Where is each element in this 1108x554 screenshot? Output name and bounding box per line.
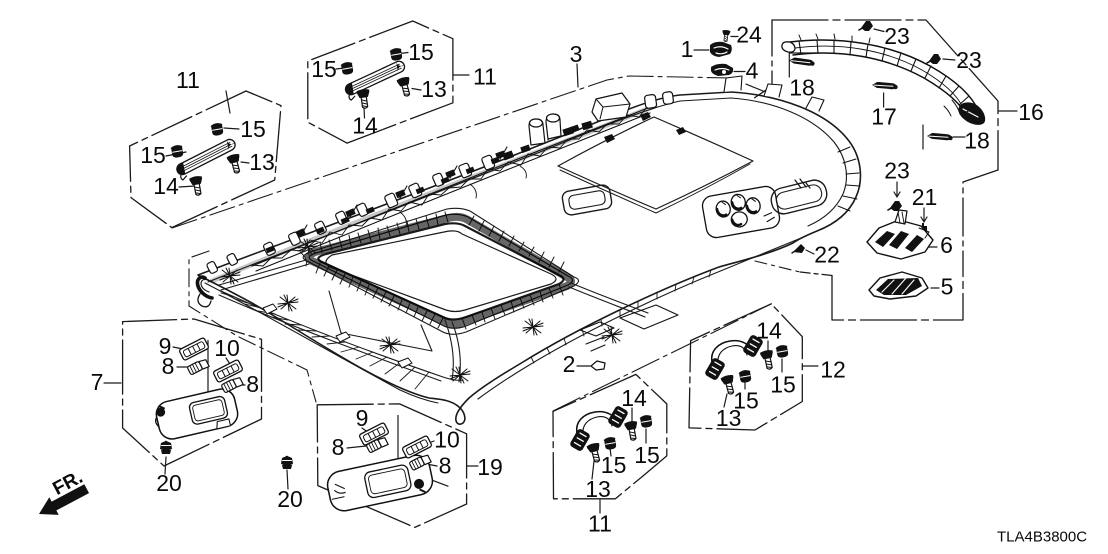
svg-text:13: 13 xyxy=(716,405,742,431)
svg-text:15: 15 xyxy=(240,116,266,142)
svg-text:10: 10 xyxy=(434,427,460,453)
svg-text:7: 7 xyxy=(91,369,104,395)
svg-text:2: 2 xyxy=(563,351,576,377)
svg-text:1: 1 xyxy=(681,36,694,62)
svg-text:15: 15 xyxy=(311,56,337,82)
svg-text:15: 15 xyxy=(634,442,660,468)
svg-text:23: 23 xyxy=(884,158,910,184)
svg-text:22: 22 xyxy=(814,242,840,268)
svg-text:8: 8 xyxy=(439,452,452,478)
svg-text:14: 14 xyxy=(621,385,647,411)
svg-text:15: 15 xyxy=(770,372,796,398)
svg-text:11: 11 xyxy=(588,510,612,536)
svg-text:15: 15 xyxy=(408,39,434,65)
svg-text:5: 5 xyxy=(941,274,954,300)
svg-text:16: 16 xyxy=(1018,99,1044,125)
svg-text:11: 11 xyxy=(176,67,200,93)
svg-text:13: 13 xyxy=(249,149,275,175)
svg-text:20: 20 xyxy=(156,470,182,496)
svg-text:6: 6 xyxy=(940,232,953,258)
svg-text:23: 23 xyxy=(956,47,982,73)
svg-text:12: 12 xyxy=(820,357,846,383)
svg-text:4: 4 xyxy=(746,58,759,84)
svg-text:13: 13 xyxy=(421,76,447,102)
svg-text:8: 8 xyxy=(162,353,175,379)
svg-text:21: 21 xyxy=(912,184,938,210)
svg-text:10: 10 xyxy=(214,335,240,361)
svg-text:18: 18 xyxy=(964,128,990,154)
svg-text:9: 9 xyxy=(356,405,369,431)
svg-text:3: 3 xyxy=(570,41,583,67)
svg-text:23: 23 xyxy=(884,23,910,49)
svg-text:8: 8 xyxy=(332,434,345,460)
svg-text:19: 19 xyxy=(477,454,503,480)
svg-text:14: 14 xyxy=(352,113,378,139)
svg-text:20: 20 xyxy=(277,486,303,512)
svg-text:13: 13 xyxy=(585,476,611,502)
svg-text:14: 14 xyxy=(153,173,179,199)
svg-text:24: 24 xyxy=(736,22,762,48)
svg-text:11: 11 xyxy=(473,64,497,90)
svg-text:TLA4B3800C: TLA4B3800C xyxy=(997,529,1087,546)
svg-text:15: 15 xyxy=(601,452,627,478)
svg-text:8: 8 xyxy=(246,371,259,397)
svg-text:15: 15 xyxy=(140,142,166,168)
svg-text:18: 18 xyxy=(789,75,815,101)
